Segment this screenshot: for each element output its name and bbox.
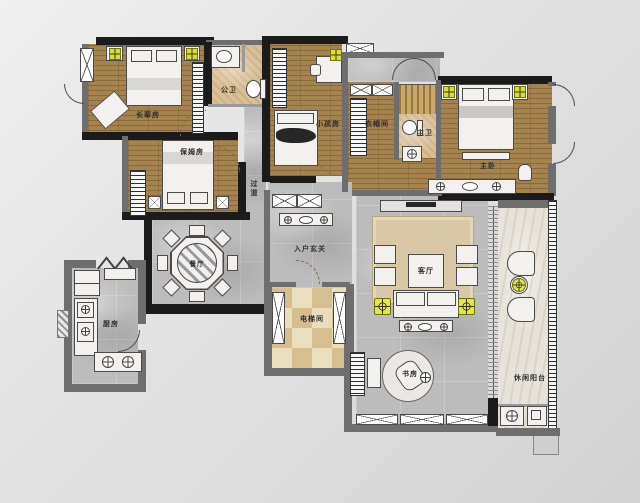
room-label-study: 书房 — [402, 369, 418, 379]
wall — [144, 304, 274, 314]
decor — [418, 323, 432, 331]
wall — [498, 200, 550, 208]
wardrobe — [130, 170, 146, 216]
exterior-unit — [57, 310, 69, 338]
lounge-chair — [507, 297, 535, 322]
sofa-cushion — [396, 292, 425, 306]
pillow — [131, 50, 152, 62]
toilet-tank — [260, 79, 266, 99]
blanket — [276, 128, 316, 143]
wall — [264, 368, 354, 376]
stool — [492, 182, 501, 191]
desk-lamp-icon — [330, 49, 342, 61]
desk-chair — [310, 64, 321, 76]
decor — [299, 216, 313, 224]
armchair — [456, 267, 478, 286]
office-chair-arm — [420, 372, 431, 383]
utility-basin — [531, 410, 541, 420]
elevator-door — [272, 292, 285, 344]
wall — [344, 424, 498, 432]
shoe-cabinet — [297, 194, 322, 208]
toilet — [402, 120, 417, 135]
bed-bench — [462, 152, 510, 160]
room-label-public-bathroom: 公卫 — [221, 85, 237, 95]
washer-drum — [506, 410, 518, 422]
window — [400, 414, 444, 425]
wall — [264, 190, 270, 288]
room-label-kitchen: 厨房 — [103, 319, 119, 329]
wall — [64, 384, 146, 392]
wall — [138, 260, 146, 324]
sofa-cushion — [427, 292, 456, 306]
wall — [488, 398, 498, 426]
plant-icon — [186, 48, 198, 60]
pillow — [488, 88, 510, 101]
sink-basin — [81, 305, 90, 314]
room-label-cloakroom: 衣帽间 — [365, 119, 389, 129]
dining-chair — [157, 255, 168, 271]
dining-chair — [189, 225, 205, 236]
wall — [262, 36, 348, 44]
wall — [268, 282, 296, 287]
sink — [216, 50, 232, 63]
room-label-living-room: 客厅 — [418, 266, 434, 276]
dining-chair — [189, 291, 205, 302]
wall — [208, 104, 268, 107]
room-label-foyer: 入户玄关 — [294, 244, 326, 254]
partition — [242, 44, 245, 72]
wall — [548, 106, 556, 144]
cabinet — [372, 84, 393, 96]
room-label-nanny-room: 保姆房 — [180, 147, 204, 157]
armchair — [456, 245, 478, 264]
sink-basin — [81, 327, 90, 336]
window — [446, 414, 488, 425]
sliding-glass-partition — [488, 206, 498, 400]
armchair — [374, 267, 396, 286]
decor — [404, 323, 412, 331]
room-label-master-bathroom: 主卫 — [417, 128, 433, 138]
side-table — [367, 358, 381, 388]
elevator-door — [333, 292, 346, 344]
decor — [440, 323, 448, 331]
door-arc — [553, 142, 575, 164]
wall — [82, 132, 238, 140]
blanket — [459, 106, 513, 118]
floor-lamp-icon — [374, 298, 391, 315]
toilet — [246, 80, 261, 98]
room-label-elevator-hall: 电梯间 — [300, 314, 324, 324]
plant-icon — [109, 48, 121, 60]
floor-plan: 长辈房 保姆房 公卫 小孩房 衣帽间 主卫 主卧 过道 餐厅 入户玄关 客厅 厨… — [0, 0, 640, 503]
room-label-corridor: 过道 — [248, 180, 258, 198]
door-arc — [553, 84, 575, 106]
armchair — [518, 164, 532, 181]
bookshelf — [350, 352, 365, 396]
pillow — [277, 113, 314, 124]
wall — [122, 136, 128, 218]
window — [80, 48, 94, 82]
shoe-cabinet — [272, 194, 297, 208]
wall — [264, 284, 272, 376]
floor-master-hall — [348, 158, 440, 194]
room-label-master-bedroom: 主卧 — [480, 161, 496, 171]
nightstand — [148, 196, 161, 209]
wall — [206, 40, 268, 45]
lamp-icon — [512, 278, 526, 292]
lounge-chair — [507, 251, 535, 276]
wall — [394, 82, 399, 160]
nightstand — [216, 196, 229, 209]
wall — [548, 164, 556, 196]
wardrobe — [192, 62, 204, 134]
mirror — [462, 182, 478, 191]
wall — [438, 76, 552, 84]
wall — [496, 428, 560, 436]
window — [356, 414, 398, 425]
decor — [284, 216, 292, 224]
wall — [96, 37, 214, 45]
wall — [262, 36, 270, 182]
decor — [320, 216, 328, 224]
dining-chair — [227, 255, 238, 271]
pillow — [167, 192, 185, 204]
wall — [342, 52, 348, 192]
room-label-balcony: 休闲阳台 — [514, 373, 546, 383]
blanket — [127, 78, 181, 90]
cabinet — [350, 84, 372, 96]
wardrobe — [272, 48, 287, 108]
door-arc — [64, 84, 84, 104]
counter — [104, 268, 136, 280]
plant-icon — [514, 86, 526, 98]
stool — [436, 182, 445, 191]
floor-lamp-icon — [458, 298, 475, 315]
burner — [122, 356, 134, 368]
ac-platform — [533, 433, 559, 455]
tv — [406, 202, 436, 207]
wall-balcony-rail — [548, 200, 557, 434]
plant-icon — [443, 86, 455, 98]
wall — [342, 52, 444, 58]
room-label-dining: 餐厅 — [190, 258, 205, 268]
room-label-kids-room: 小孩房 — [316, 119, 340, 129]
pillow — [156, 50, 177, 62]
pillow — [190, 192, 208, 204]
wall — [270, 176, 316, 183]
burner — [102, 356, 114, 368]
room-label-elder-bedroom: 长辈房 — [136, 110, 160, 120]
floor-shower — [398, 84, 438, 116]
fridge-divider — [74, 283, 100, 284]
armchair — [374, 245, 396, 264]
sink — [407, 149, 417, 159]
pillow — [462, 88, 484, 101]
wall — [322, 282, 350, 287]
